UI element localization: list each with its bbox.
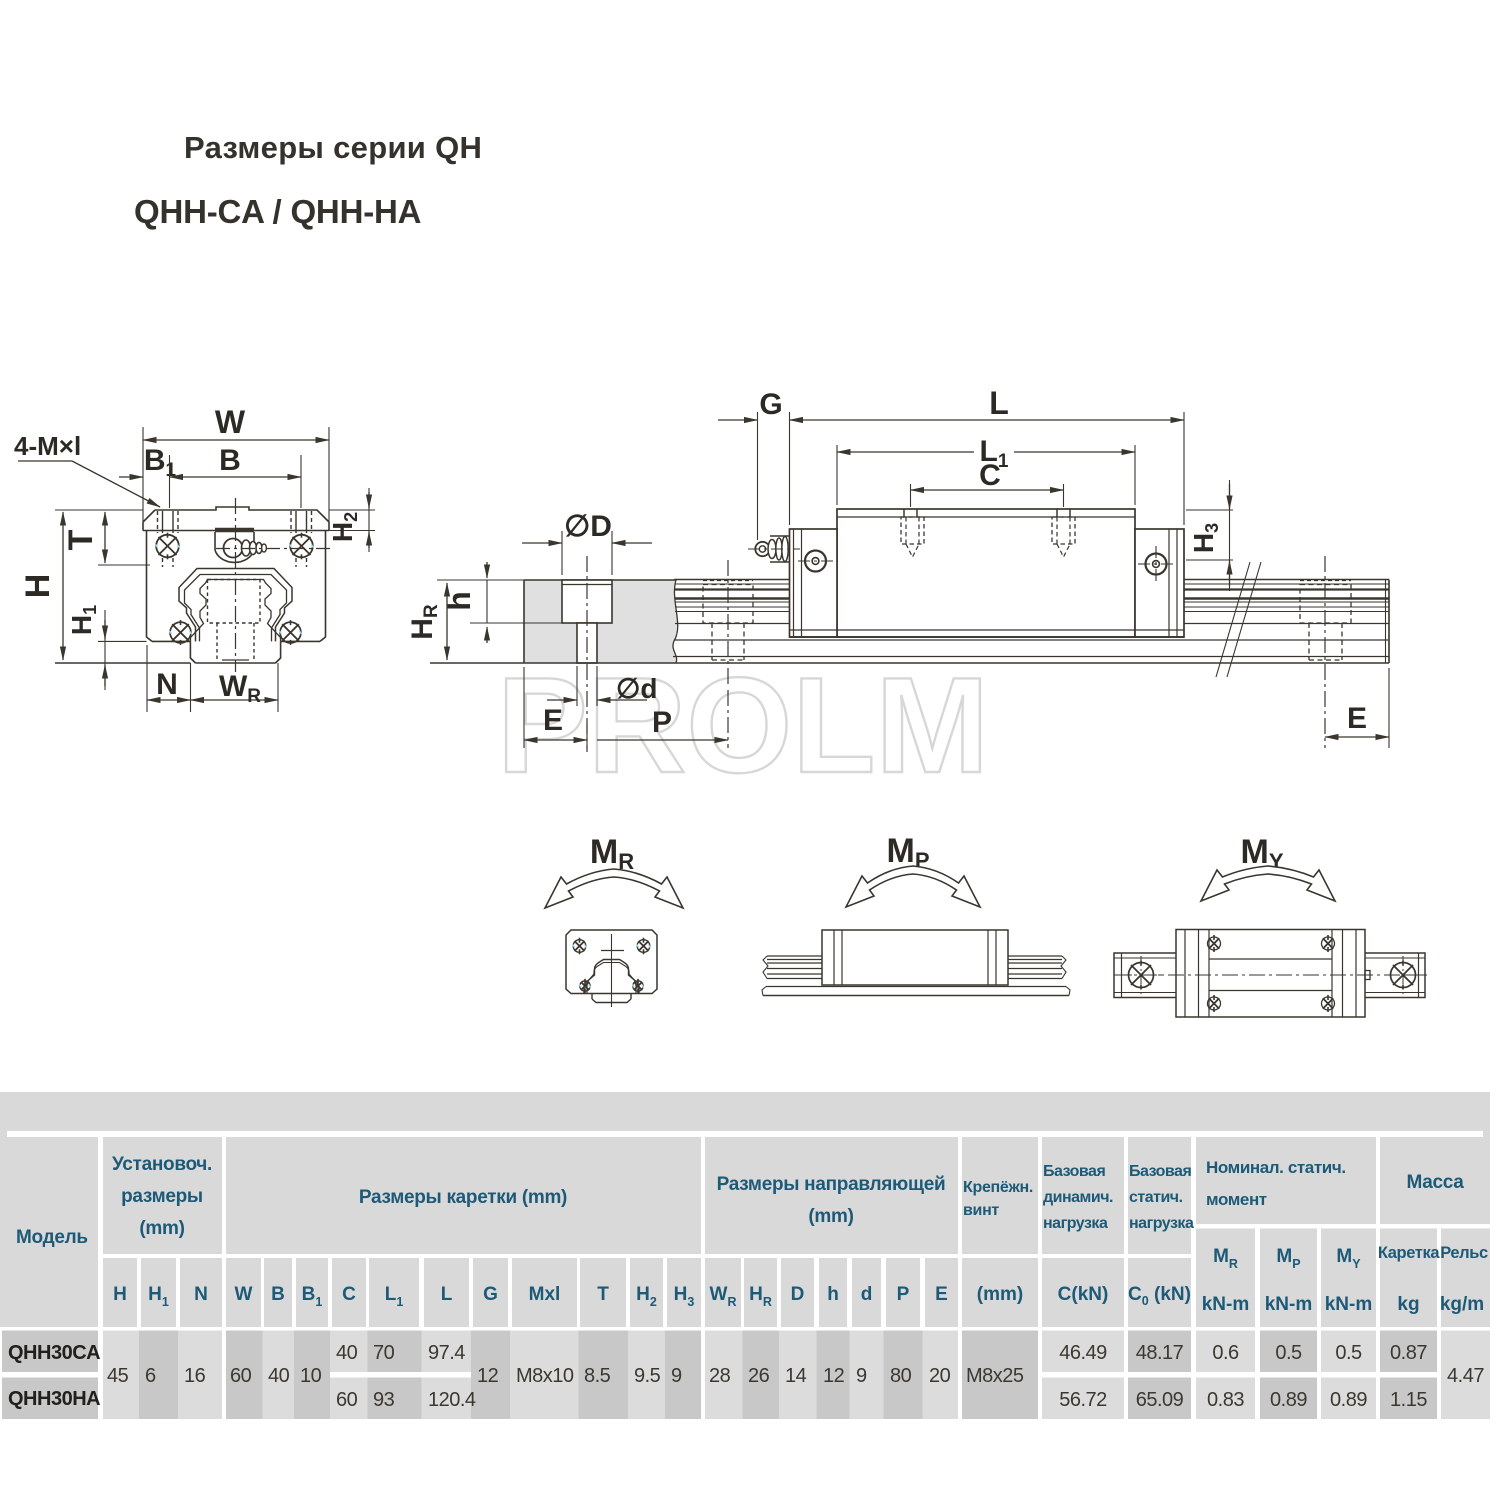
svg-text:4.47: 4.47 <box>1447 1365 1484 1387</box>
svg-text:QHH30HA: QHH30HA <box>8 1388 100 1410</box>
svg-text:6: 6 <box>145 1365 156 1387</box>
svg-text:C: C <box>342 1284 356 1305</box>
svg-text:MR: MR <box>590 833 634 874</box>
svg-text:Крепёжн.: Крепёжн. <box>963 1179 1033 1196</box>
svg-text:kN-m: kN-m <box>1325 1294 1373 1315</box>
svg-text:65.09: 65.09 <box>1136 1389 1184 1411</box>
svg-text:B: B <box>271 1284 285 1305</box>
svg-text:G: G <box>759 388 782 421</box>
svg-text:N: N <box>156 668 178 701</box>
svg-text:нагрузка: нагрузка <box>1129 1215 1194 1232</box>
svg-text:L: L <box>441 1284 453 1305</box>
svg-text:16: 16 <box>184 1365 206 1387</box>
svg-text:Базовая: Базовая <box>1043 1163 1105 1180</box>
svg-text:E: E <box>1347 702 1367 735</box>
svg-text:46.49: 46.49 <box>1059 1342 1107 1364</box>
svg-text:26: 26 <box>748 1365 770 1387</box>
svg-text:W: W <box>235 1284 253 1305</box>
svg-text:T: T <box>597 1284 609 1305</box>
svg-text:48.17: 48.17 <box>1136 1342 1184 1364</box>
svg-text:0.5: 0.5 <box>1275 1342 1302 1364</box>
svg-text:винт: винт <box>963 1202 999 1219</box>
svg-text:0.87: 0.87 <box>1390 1342 1427 1364</box>
svg-text:QHH-CA / QHH-HA: QHH-CA / QHH-HA <box>134 193 421 230</box>
svg-text:P: P <box>897 1284 910 1305</box>
svg-text:40: 40 <box>268 1365 290 1387</box>
svg-text:C: C <box>979 459 1001 492</box>
svg-text:10: 10 <box>300 1365 322 1387</box>
svg-text:H: H <box>19 574 57 599</box>
svg-text:h: h <box>827 1284 839 1305</box>
svg-text:0.89: 0.89 <box>1270 1389 1307 1411</box>
svg-text:B: B <box>219 444 241 477</box>
svg-text:0.5: 0.5 <box>1335 1342 1362 1364</box>
svg-text:45: 45 <box>107 1365 129 1387</box>
svg-text:Размеры серии QH: Размеры серии QH <box>184 130 482 165</box>
svg-text:0.6: 0.6 <box>1212 1342 1239 1364</box>
svg-text:9: 9 <box>671 1365 682 1387</box>
svg-text:M8x10: M8x10 <box>516 1365 574 1387</box>
svg-text:Размеры направляющей: Размеры направляющей <box>717 1174 946 1195</box>
svg-text:60: 60 <box>230 1365 252 1387</box>
svg-text:56.72: 56.72 <box>1059 1389 1107 1411</box>
svg-text:14: 14 <box>785 1365 807 1387</box>
svg-text:0.83: 0.83 <box>1207 1389 1244 1411</box>
svg-text:(mm): (mm) <box>977 1284 1023 1305</box>
svg-text:12: 12 <box>823 1365 845 1387</box>
svg-text:T: T <box>62 529 100 550</box>
svg-text:93: 93 <box>373 1389 395 1411</box>
svg-text:E: E <box>935 1284 948 1305</box>
svg-text:d: d <box>861 1284 873 1305</box>
svg-text:C0 (kN): C0 (kN) <box>1128 1284 1191 1308</box>
svg-text:C(kN): C(kN) <box>1058 1284 1109 1305</box>
svg-text:H: H <box>113 1284 127 1305</box>
svg-text:(mm): (mm) <box>139 1218 184 1239</box>
svg-text:H3: H3 <box>1188 523 1222 553</box>
svg-text:HR: HR <box>406 604 442 640</box>
svg-text:kN-m: kN-m <box>1202 1294 1250 1315</box>
svg-text:12: 12 <box>477 1365 499 1387</box>
svg-text:H1: H1 <box>66 605 100 635</box>
svg-text:(mm): (mm) <box>808 1206 853 1227</box>
svg-text:70: 70 <box>373 1342 395 1364</box>
svg-text:L: L <box>989 385 1009 421</box>
svg-text:0.89: 0.89 <box>1330 1389 1367 1411</box>
svg-text:20: 20 <box>929 1365 951 1387</box>
svg-text:4-M×l: 4-M×l <box>14 431 81 461</box>
svg-text:Установоч.: Установоч. <box>112 1154 212 1175</box>
svg-text:Модель: Модель <box>16 1227 88 1248</box>
svg-text:PROLM: PROLM <box>497 649 989 801</box>
svg-text:динамич.: динамич. <box>1043 1189 1113 1206</box>
svg-text:QHH30CA: QHH30CA <box>8 1342 100 1364</box>
svg-text:B1: B1 <box>144 444 177 481</box>
svg-text:Номинал. статич.: Номинал. статич. <box>1206 1158 1346 1177</box>
svg-text:28: 28 <box>709 1365 731 1387</box>
svg-text:M8x25: M8x25 <box>966 1365 1024 1387</box>
svg-text:kg: kg <box>1397 1294 1419 1315</box>
svg-text:Каретка: Каретка <box>1378 1244 1440 1262</box>
svg-text:Базовая: Базовая <box>1129 1163 1191 1180</box>
svg-text:N: N <box>194 1284 208 1305</box>
svg-text:kg/m: kg/m <box>1440 1294 1484 1315</box>
svg-text:P: P <box>652 706 672 739</box>
svg-text:нагрузка: нагрузка <box>1043 1215 1108 1232</box>
svg-text:120.4: 120.4 <box>428 1389 476 1411</box>
svg-text:G: G <box>483 1284 498 1305</box>
svg-text:97.4: 97.4 <box>428 1342 465 1364</box>
svg-text:1.15: 1.15 <box>1390 1389 1427 1411</box>
svg-text:момент: момент <box>1206 1190 1267 1209</box>
svg-text:статич.: статич. <box>1129 1189 1183 1206</box>
svg-text:WR: WR <box>219 670 261 707</box>
svg-text:kN-m: kN-m <box>1265 1294 1313 1315</box>
svg-text:H2: H2 <box>327 512 361 542</box>
svg-text:40: 40 <box>336 1342 358 1364</box>
svg-text:W: W <box>215 404 246 440</box>
svg-text:E: E <box>543 704 563 737</box>
svg-text:60: 60 <box>336 1389 358 1411</box>
svg-text:8.5: 8.5 <box>584 1365 611 1387</box>
svg-text:Mxl: Mxl <box>529 1284 561 1305</box>
svg-text:9: 9 <box>856 1365 867 1387</box>
svg-text:Размеры каретки (mm): Размеры каретки (mm) <box>359 1187 567 1208</box>
svg-text:размеры: размеры <box>121 1186 203 1207</box>
svg-text:9.5: 9.5 <box>634 1365 661 1387</box>
svg-text:80: 80 <box>890 1365 912 1387</box>
svg-text:∅D: ∅D <box>564 510 612 543</box>
svg-text:Рельс: Рельс <box>1440 1244 1488 1262</box>
svg-text:Масса: Масса <box>1406 1172 1464 1193</box>
svg-text:D: D <box>791 1284 805 1305</box>
